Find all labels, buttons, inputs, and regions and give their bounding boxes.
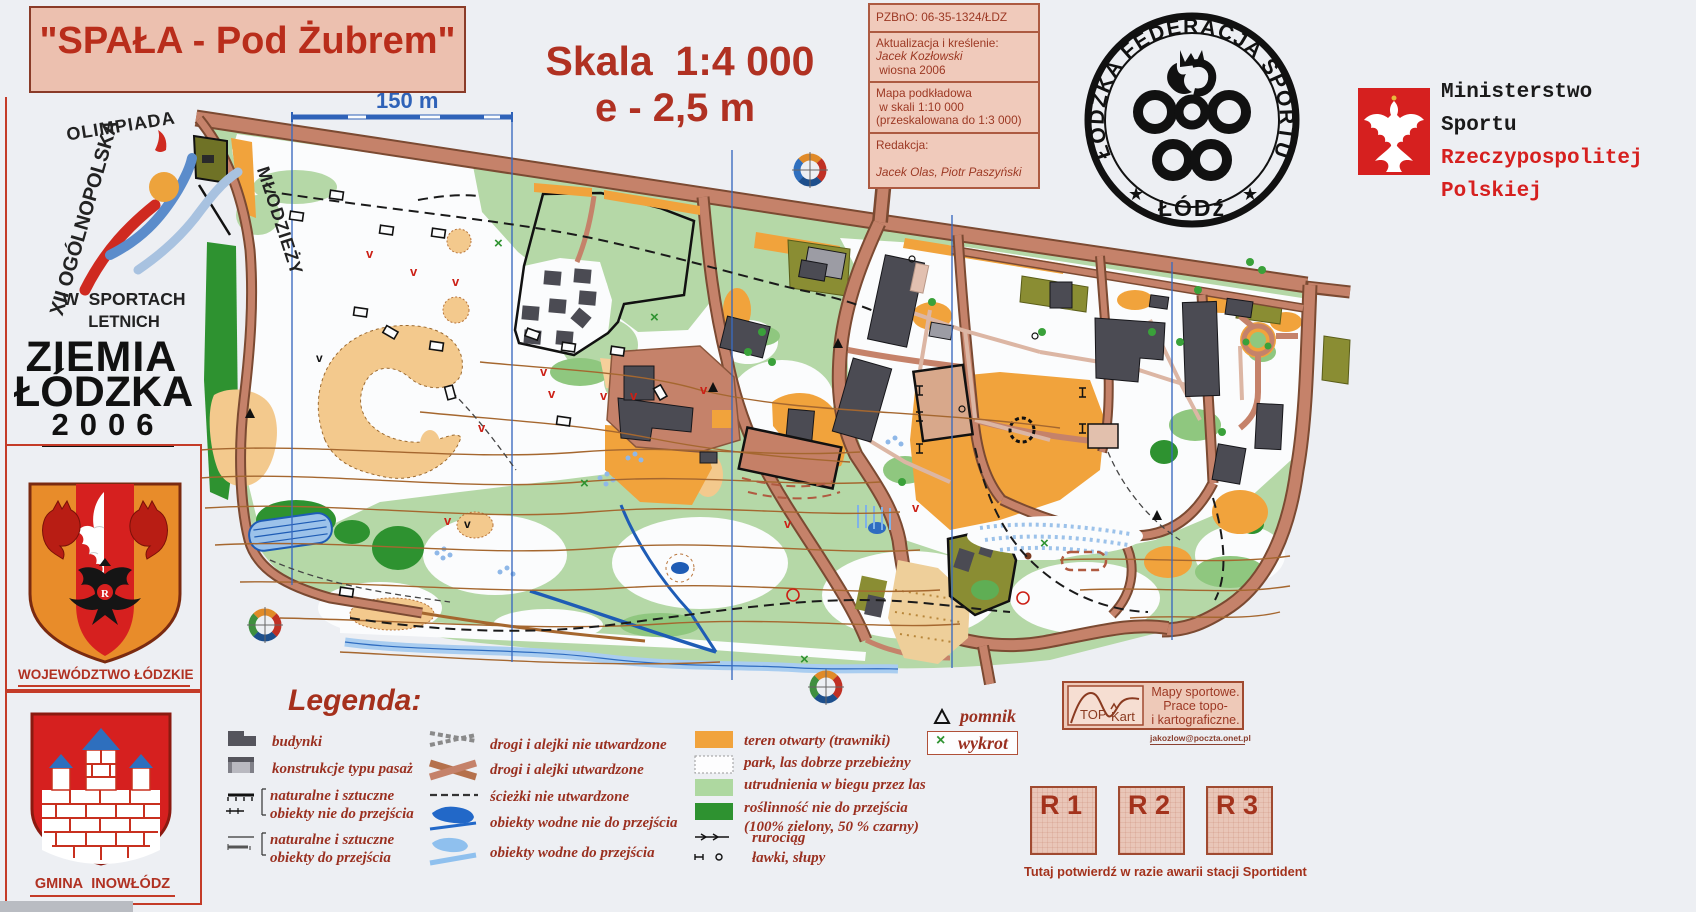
svg-text:TOP: TOP (1080, 707, 1107, 722)
svg-text:v: v (912, 500, 920, 515)
svg-text:ŁÓDZKA FEDERACJA SPORTU: ŁÓDZKA FEDERACJA SPORTU (1085, 15, 1298, 162)
svg-text:★: ★ (1242, 184, 1258, 204)
svg-text:★: ★ (1128, 184, 1144, 204)
svg-text:v: v (700, 382, 708, 397)
svg-text:R: R (101, 588, 110, 600)
svg-text:v: v (548, 386, 556, 401)
svg-text:v: v (600, 388, 608, 403)
svg-text:v: v (452, 274, 460, 289)
svg-text:v: v (540, 364, 548, 379)
svg-text:Kart: Kart (1111, 709, 1135, 724)
svg-text:×: × (580, 475, 589, 492)
svg-text:×: × (494, 235, 503, 252)
svg-text:v: v (366, 246, 374, 261)
svg-text:ŁÓDź: ŁÓDź (1158, 194, 1226, 221)
svg-text:×: × (1040, 535, 1049, 552)
svg-text:v: v (410, 264, 418, 279)
svg-text:v: v (478, 420, 486, 435)
svg-text:v: v (316, 351, 323, 365)
svg-text:×: × (800, 651, 809, 668)
svg-text:v: v (630, 388, 638, 403)
svg-text:v: v (784, 516, 792, 531)
svg-text:v: v (464, 517, 471, 531)
svg-text:v: v (444, 513, 452, 528)
svg-text:×: × (650, 309, 659, 326)
